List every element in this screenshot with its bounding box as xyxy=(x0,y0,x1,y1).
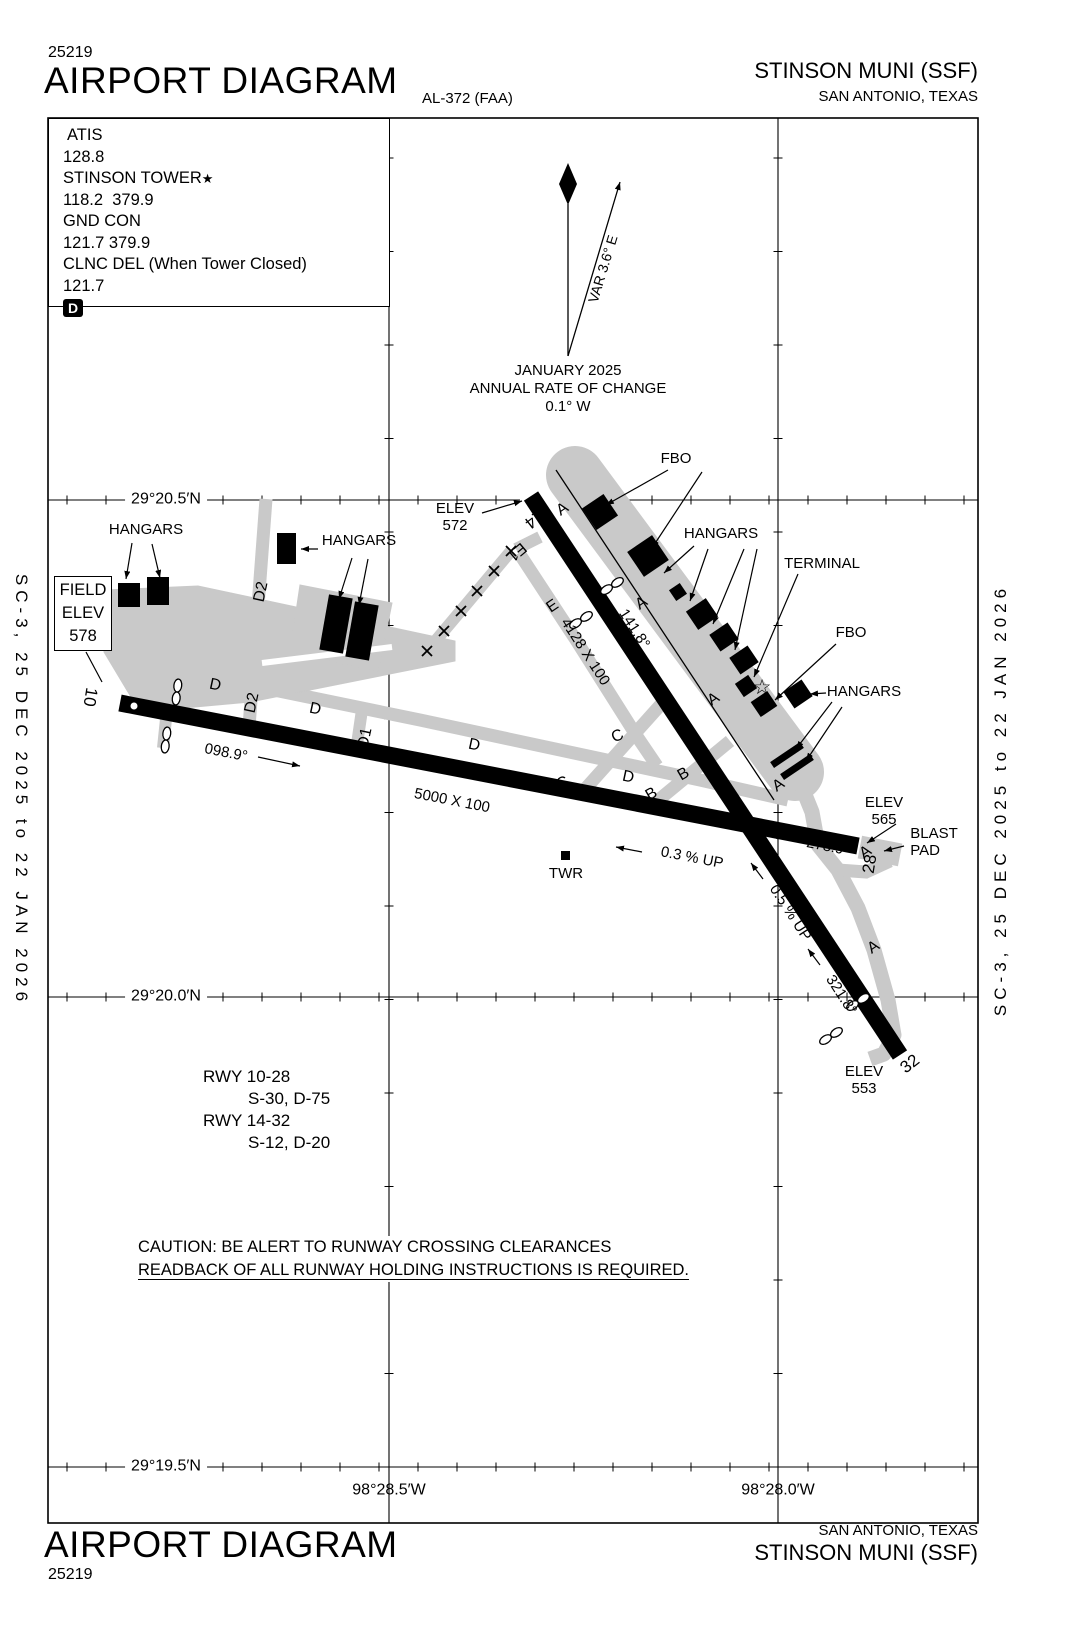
annual-rate-value: 0.1° W xyxy=(545,399,590,415)
field-elev-word1: FIELD xyxy=(55,579,111,602)
hangar-building xyxy=(118,583,140,607)
longitude-label-1: 98°28.5′W xyxy=(352,1483,425,1500)
elev-label-rwy32: ELEV xyxy=(845,1063,883,1080)
terminal-label: TERMINAL xyxy=(784,556,860,572)
caution-note: CAUTION: BE ALERT TO RUNWAY CROSSING CLE… xyxy=(138,1236,693,1282)
runway-14-32-id: RWY 14-32 xyxy=(203,1110,330,1132)
page-title-footer: AIRPORT DIAGRAM xyxy=(44,1524,398,1566)
elev-value-rwy32: 553 xyxy=(845,1080,883,1097)
runway-14-32-strength: S-12, D-20 xyxy=(203,1132,330,1154)
tower-building xyxy=(561,851,570,860)
chart-border xyxy=(48,118,978,1523)
hangars-label-west: HANGARS xyxy=(109,522,183,538)
airport-name: STINSON MUNI (SSF) xyxy=(754,58,978,84)
runway-10-threshold-dot xyxy=(131,703,138,710)
elev-value-rwy14: 572 xyxy=(436,517,474,534)
annual-rate-label: ANNUAL RATE OF CHANGE xyxy=(470,381,667,397)
runway-14-32-shape xyxy=(531,496,900,1055)
hangar-building xyxy=(147,577,169,605)
taxiway-apron-layer xyxy=(104,475,902,1059)
field-elev-word2: ELEV xyxy=(55,602,111,625)
fbo-label-2: FBO xyxy=(836,625,867,641)
runway-data-block: RWY 10-28 S-30, D-75 RWY 14-32 S-12, D-2… xyxy=(203,1066,330,1154)
hangars-label-mid: HANGARS xyxy=(322,533,396,549)
tower-star-icon: ★ xyxy=(202,171,214,186)
field-elevation-box: FIELD ELEV 578 xyxy=(54,576,112,651)
elev-value-rwy28: 565 xyxy=(865,811,903,828)
ground-label: GND CON xyxy=(63,211,389,233)
elev-label-rwy14: ELEV xyxy=(436,500,474,517)
caution-line2: READBACK OF ALL RUNWAY HOLDING INSTRUCTI… xyxy=(138,1259,689,1282)
airport-city-footer: SAN ANTONIO, TEXAS xyxy=(819,1522,979,1539)
latitude-label-1: 29°20.5′N xyxy=(125,492,207,509)
tower-label-map: TWR xyxy=(549,866,583,882)
tower-label: STINSON TOWER★ xyxy=(63,168,389,190)
latitude-label-3: 29°19.5′N xyxy=(125,1459,207,1476)
hangars-label-east: HANGARS xyxy=(827,684,901,700)
runway-10-28-strength: S-30, D-75 xyxy=(203,1088,330,1110)
longitude-label-2: 98°28.0′W xyxy=(741,1483,814,1500)
clearance-label: CLNC DEL (When Tower Closed) xyxy=(63,254,389,276)
procedure-id: AL-372 (FAA) xyxy=(422,90,513,107)
communications-box: ATIS 128.8 STINSON TOWER★ 118.2 379.9 GN… xyxy=(48,118,390,307)
ground-frequency: 121.7 379.9 xyxy=(63,233,389,255)
blast-pad-label-line2: PAD xyxy=(910,842,958,859)
hangar-building xyxy=(783,680,812,709)
page-title: AIRPORT DIAGRAM xyxy=(44,60,398,102)
beacon-icon: ☆ xyxy=(753,677,772,699)
caution-line1: CAUTION: BE ALERT TO RUNWAY CROSSING CLE… xyxy=(138,1236,689,1259)
atis-label: ATIS xyxy=(63,125,389,147)
hangars-label-ne: HANGARS xyxy=(684,526,758,542)
field-elev-value: 578 xyxy=(55,625,111,648)
graticule-lines xyxy=(48,118,978,1523)
blast-pad-label-line1: BLAST xyxy=(910,825,958,842)
airport-city: SAN ANTONIO, TEXAS xyxy=(819,88,979,105)
runway-10-28-id: RWY 10-28 xyxy=(203,1066,330,1088)
effective-dates-right: SC-3, 25 DEC 2025 to 22 JAN 2026 xyxy=(991,584,1011,1016)
runway-10-number: 10 xyxy=(80,686,101,707)
atis-frequency: 128.8 xyxy=(63,147,389,169)
hold-for-release-icon: D xyxy=(63,299,83,317)
tower-frequency: 118.2 379.9 xyxy=(63,190,389,212)
clearance-frequency: 121.7 xyxy=(63,276,389,298)
airport-diagram-page: 25219 AIRPORT DIAGRAM AL-372 (FAA) STINS… xyxy=(0,0,1076,1650)
latitude-label-2: 29°20.0′N xyxy=(125,989,207,1006)
chart-number-bottom: 25219 xyxy=(48,1566,93,1584)
fbo-label-1: FBO xyxy=(661,451,692,467)
effective-dates-left: SC-3, 25 DEC 2025 to 22 JAN 2026 xyxy=(11,574,31,1006)
airport-name-footer: STINSON MUNI (SSF) xyxy=(754,1540,978,1566)
variation-date: JANUARY 2025 xyxy=(514,363,621,379)
hangar-building xyxy=(277,533,296,564)
elev-label-rwy28: ELEV xyxy=(865,794,903,811)
